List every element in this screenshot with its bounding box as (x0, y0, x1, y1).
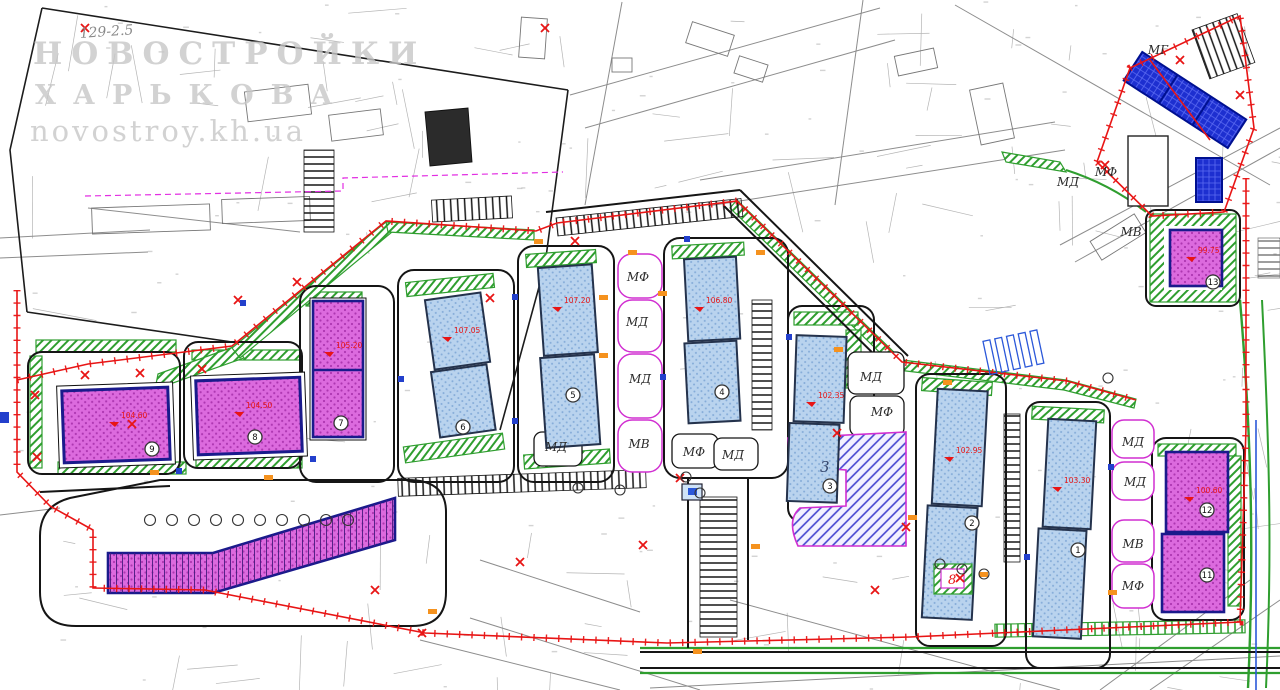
survey-cross (639, 541, 647, 549)
zone-label-мг-16: МГ (1147, 43, 1169, 57)
zone-label-мф-12: МФ (1121, 579, 1144, 593)
survey-cross (81, 371, 89, 379)
survey-cross (486, 294, 494, 302)
building-badge-12: 12 (1200, 503, 1214, 517)
building-number-text: 6 (460, 423, 465, 433)
building-8 (191, 372, 308, 460)
building-badge-11: 11 (1200, 568, 1214, 582)
building-badge-6: 6 (456, 420, 470, 434)
survey-cross (571, 237, 579, 245)
level-mark-text: 104.60 (121, 411, 147, 420)
building-number-text: 11 (1202, 571, 1213, 581)
zone-label-мд-2: МД (628, 372, 651, 386)
level-mark-text: 103.30 (1064, 476, 1090, 485)
zone-label-мд-13: МД (1056, 175, 1079, 189)
survey-cross (1176, 56, 1184, 64)
zone-label-мд-7: МД (859, 370, 882, 384)
survey-cross (516, 558, 524, 566)
building-1 (1033, 419, 1096, 639)
zone-label-мд-9: МД (1121, 435, 1144, 449)
watermark-line-1: НОВОСТРОЙКИ (33, 32, 426, 72)
building-badge-3: 3 (823, 479, 837, 493)
zone-label-мд-10: МД (1123, 475, 1146, 489)
building-badge-1: 1 (1071, 543, 1085, 557)
zone-label-мв-3: МВ (627, 437, 649, 451)
building-number-text: 4 (719, 388, 724, 398)
building-number-text: 12 (1202, 506, 1213, 516)
building-badge-13: 13 (1206, 275, 1220, 289)
dark-blue-buildings (1124, 52, 1247, 206)
parking-building (108, 498, 395, 593)
zone-label-мв-15: МВ (1119, 225, 1141, 239)
building-number-text: 13 (1208, 278, 1219, 288)
zone-label-мф-14: МФ (1094, 165, 1117, 179)
building-badge-2: 2 (965, 516, 979, 530)
site-plan-page: МФМДМДМВМДМФМДМДМФМДМДМВМФМДМФМВМГ 98765… (0, 0, 1280, 690)
zone-label-мф-5: МФ (682, 445, 705, 459)
level-mark-text: 99.75 (1198, 246, 1220, 255)
survey-cross (136, 369, 144, 377)
zone-label-мф-0: МФ (626, 270, 649, 284)
zone-label-мд-1: МД (625, 315, 648, 329)
zone-label-мв-11: МВ (1121, 537, 1143, 551)
building-4 (680, 257, 745, 424)
level-mark-text: 106.80 (706, 296, 732, 305)
level-mark-text: 105.20 (336, 341, 362, 350)
dark-hatched-building (425, 108, 472, 166)
survey-cross (541, 24, 549, 32)
survey-cross (871, 586, 879, 594)
bike-rack-strips (983, 330, 1044, 375)
watermark-line-3: novostroy.kh.ua (30, 114, 306, 148)
building-number-text: 3 (827, 482, 832, 492)
building-badge-9: 9 (145, 442, 159, 456)
survey-cross (371, 586, 379, 594)
zone-label-мд-6: МД (721, 448, 744, 462)
survey-cross (1236, 91, 1244, 99)
watermark-line-2: ХАРЬКОВА (35, 80, 349, 111)
building-badge-8: 8 (248, 430, 262, 444)
building-number-text: 1 (1075, 546, 1080, 556)
level-mark-text: 107.20 (564, 296, 590, 305)
zone-label-мд-4: МД (544, 440, 567, 454)
building-badge-5: 5 (566, 388, 580, 402)
building-number-text: 7 (338, 419, 343, 429)
building-5 (534, 264, 604, 448)
building-badge-4: 4 (715, 385, 729, 399)
building-number-text: 9 (149, 445, 154, 455)
zone-label-мф-8: МФ (870, 405, 893, 419)
building-number-text: 5 (570, 391, 575, 401)
building-6 (421, 292, 500, 437)
building-badge-7: 7 (334, 416, 348, 430)
level-mark-text: 107.05 (454, 326, 480, 335)
building-number-text: 2 (969, 519, 974, 529)
building-12-11 (1162, 452, 1228, 612)
master-plan-canvas: МФМДМДМВМДМФМДМДМФМДМДМВМФМДМФМВМГ 98765… (0, 0, 1280, 690)
level-mark-text: 100.60 (1196, 486, 1222, 495)
building-3 (787, 335, 847, 503)
level-mark-text: 102.35 (818, 391, 844, 400)
building-number-text: 8 (252, 433, 257, 443)
survey-cross (293, 278, 301, 286)
block-number-label: 3 (820, 458, 830, 476)
level-mark-text: 104.50 (246, 401, 272, 410)
level-mark-text: 102.95 (956, 446, 982, 455)
transformer-number-label: 8 (948, 573, 956, 588)
